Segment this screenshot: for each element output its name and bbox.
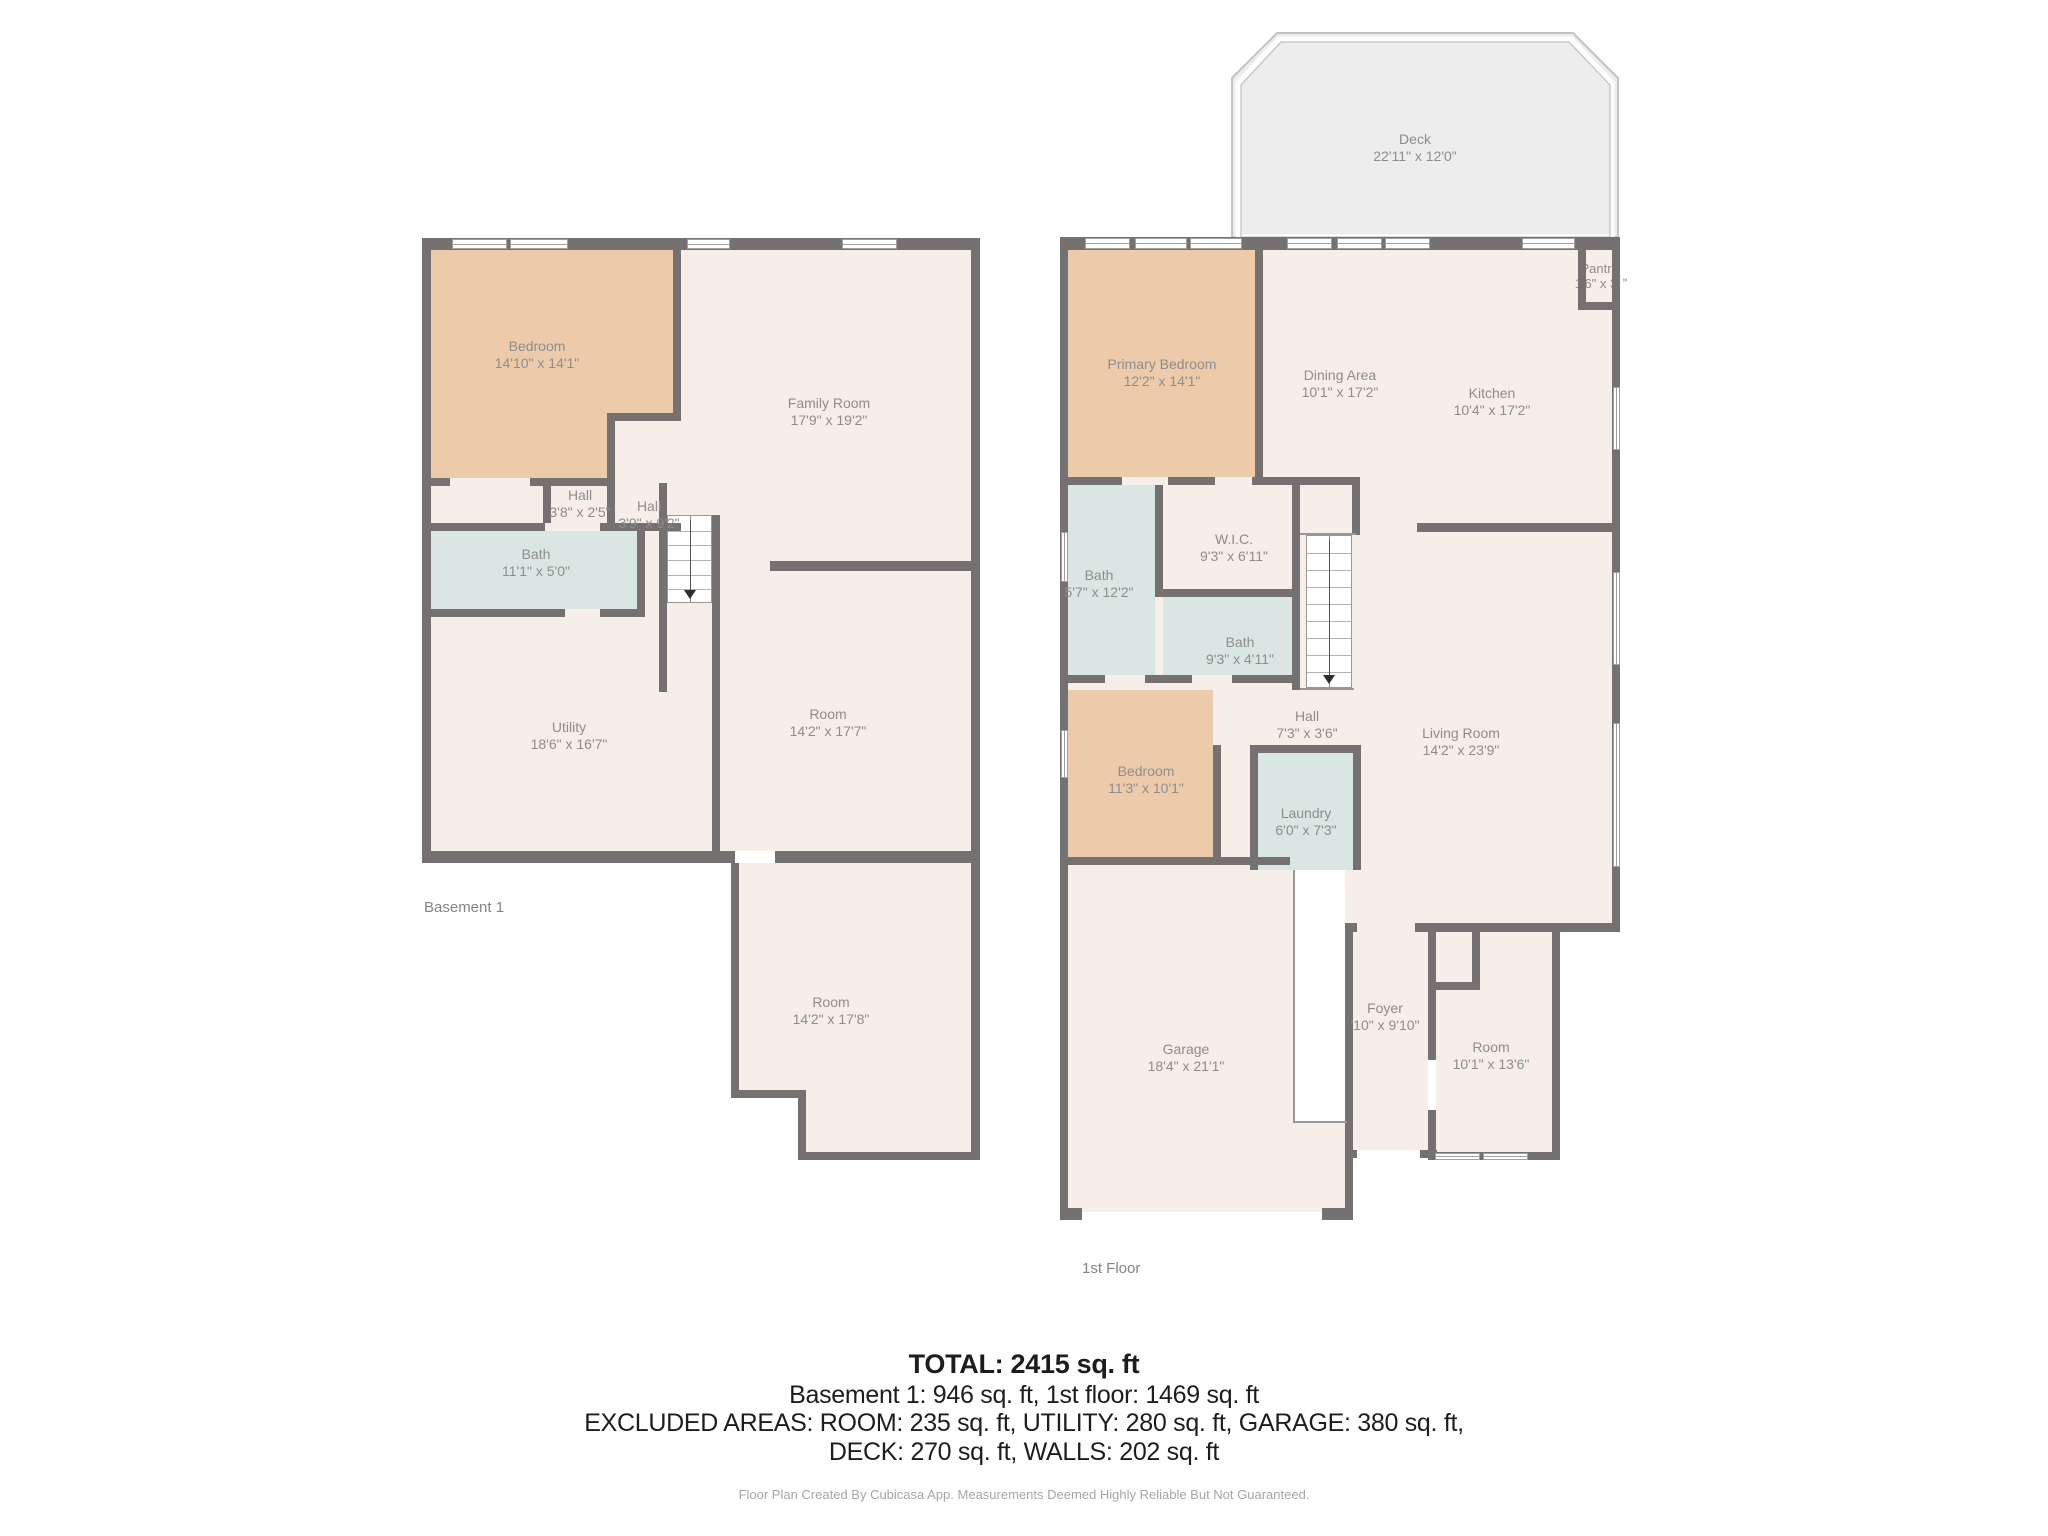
- wall: [1292, 485, 1300, 690]
- stair-direction-arrow: [690, 520, 691, 594]
- window-icon: [1613, 387, 1620, 450]
- room-name: Hall: [1295, 708, 1319, 724]
- wall: [530, 478, 607, 486]
- room-dims: 10'1" x 13'6": [1453, 1056, 1530, 1073]
- wall: [1213, 745, 1221, 865]
- room-dims: 10'4" x 17'2": [1454, 402, 1531, 419]
- room-label-family-room: Family Room 17'9" x 19'2": [788, 395, 870, 429]
- railing-line: [1300, 533, 1356, 535]
- room-label-garage: Garage 18'4" x 21'1": [1148, 1041, 1225, 1075]
- room-name: Bedroom: [1118, 763, 1175, 779]
- window-mullion: [843, 244, 896, 245]
- room-name: Bedroom: [509, 338, 566, 354]
- stair-arrow-head-icon: [684, 590, 696, 599]
- window-icon: [1385, 238, 1430, 249]
- window-icon: [1287, 238, 1332, 249]
- basement-caption: Basement 1: [424, 899, 504, 916]
- wall: [1578, 302, 1620, 310]
- room-name: Room: [809, 706, 846, 722]
- wall: [1345, 923, 1357, 932]
- wall: [422, 609, 565, 617]
- room-dims: 11'1" x 5'0": [502, 563, 570, 580]
- room-dims: 9'3" x 6'11": [1200, 548, 1268, 565]
- window-icon: [1337, 238, 1382, 249]
- wall: [1345, 1150, 1357, 1158]
- window-icon: [1522, 238, 1575, 249]
- staircase: [1306, 535, 1352, 688]
- wall: [1352, 485, 1360, 535]
- room-label-basement-room-1: Room 14'2" x 17'7": [790, 706, 867, 740]
- wall: [798, 1098, 806, 1160]
- window-mullion: [688, 244, 729, 245]
- room-name: Room: [1472, 1039, 1509, 1055]
- room-name: Living Room: [1422, 725, 1500, 741]
- window-mullion: [511, 244, 567, 245]
- wall: [1168, 477, 1215, 485]
- wall: [731, 863, 739, 1098]
- room-name: W.I.C.: [1215, 531, 1253, 547]
- window-mullion: [1523, 243, 1574, 244]
- summary-total: TOTAL: 2415 sq. ft: [0, 1349, 2048, 1380]
- wall: [1255, 250, 1263, 477]
- room-dims: 12'2" x 14'1": [1108, 373, 1217, 390]
- room-dims: '10" x 9'10": [1351, 1017, 1420, 1034]
- room-name: Bath: [1226, 634, 1255, 650]
- wall: [1250, 745, 1258, 870]
- window-icon: [1190, 238, 1242, 249]
- room-dims: 14'10" x 14'1": [495, 355, 580, 372]
- room-name: Utility: [552, 719, 586, 735]
- wall: [1060, 237, 1068, 1220]
- room-label-basement-bedroom: Bedroom 14'10" x 14'1": [495, 338, 580, 372]
- room-dims: 14'2" x 17'7": [790, 723, 867, 740]
- room-label-utility: Utility 18'6" x 16'7": [531, 719, 608, 753]
- window-mullion: [453, 244, 506, 245]
- window-icon: [842, 239, 897, 249]
- wall: [1060, 1208, 1082, 1220]
- room-dims: 14'2" x 23'9": [1422, 742, 1500, 759]
- window-mullion: [1616, 573, 1617, 664]
- room-name: Hall: [568, 487, 592, 503]
- wall: [1415, 923, 1620, 932]
- wall: [673, 238, 681, 413]
- room-dims: 11'3" x 10'1": [1108, 780, 1184, 797]
- room-dims: 17'9" x 19'2": [788, 412, 870, 429]
- room-dims: 14'2" x 17'8": [793, 1011, 870, 1028]
- room-name: Garage: [1163, 1041, 1210, 1057]
- wall: [775, 851, 980, 863]
- room-dims: 18'6" x 16'7": [531, 736, 608, 753]
- window-icon: [510, 239, 568, 249]
- room-label-bath-1: Bath 5'7" x 12'2": [1065, 567, 1134, 601]
- room-label-dining-area: Dining Area 10'1" x 17'2": [1302, 367, 1379, 401]
- bedroom-area: [431, 250, 673, 413]
- room-label-hall: Hall 7'3" x 3'6": [1276, 708, 1337, 742]
- summary-disclaimer: Floor Plan Created By Cubicasa App. Meas…: [0, 1487, 2048, 1502]
- pantry-overflow-mark: ": [1623, 276, 1628, 291]
- wall: [1472, 932, 1480, 990]
- room-name: Kitchen: [1469, 385, 1516, 401]
- room-label-basement-hall-2: Hall 3'9" x 9'2": [618, 498, 679, 532]
- room-dims: 10'1" x 17'2": [1302, 384, 1379, 401]
- room-label-living-room: Living Room 14'2" x 23'9": [1422, 725, 1500, 759]
- wall: [1345, 930, 1353, 1158]
- room-dims: 7'3" x 3'6": [1276, 725, 1337, 742]
- stair-arrow-head-icon: [1323, 675, 1335, 684]
- summary-excluded-areas-2: DECK: 270 sq. ft, WALLS: 202 sq. ft: [0, 1438, 2048, 1467]
- first-floor-caption: 1st Floor: [1082, 1260, 1140, 1277]
- wall: [1060, 477, 1122, 485]
- floor-area: [806, 1090, 971, 1152]
- window-icon: [1483, 1153, 1528, 1160]
- window-icon: [1435, 1153, 1480, 1160]
- window-mullion: [1136, 243, 1186, 244]
- room-label-primary-bedroom: Primary Bedroom 12'2" x 14'1": [1108, 356, 1217, 390]
- window-mullion: [1064, 731, 1065, 777]
- wall: [1353, 745, 1361, 870]
- wall: [1578, 250, 1586, 310]
- window-icon: [687, 239, 730, 249]
- stairwell-opening: [1295, 870, 1345, 1121]
- railing-line: [1293, 870, 1295, 1123]
- wall: [1250, 745, 1353, 753]
- room-label-bedroom-2: Bedroom 11'3" x 10'1": [1108, 763, 1184, 797]
- summary-floor-areas: Basement 1: 946 sq. ft, 1st floor: 1469 …: [0, 1381, 2048, 1410]
- room-label-wic: W.I.C. 9'3" x 6'11": [1200, 531, 1268, 565]
- wall: [637, 531, 645, 617]
- wall: [607, 413, 681, 421]
- wall: [422, 478, 450, 486]
- room-dims: 3'8" x 2'5": [549, 504, 610, 521]
- wall: [731, 1090, 806, 1098]
- wall: [422, 523, 545, 531]
- window-icon: [1613, 723, 1620, 867]
- window-icon: [1085, 238, 1130, 249]
- window-icon: [1135, 238, 1187, 249]
- room-label-foyer: Foyer '10" x 9'10": [1351, 1000, 1420, 1034]
- wall: [1155, 589, 1300, 597]
- wall: [798, 1152, 980, 1160]
- wall: [712, 515, 720, 863]
- window-mullion: [1386, 243, 1429, 244]
- room-label-deck: Deck 22'11" x 12'0": [1373, 131, 1457, 165]
- window-mullion: [1616, 724, 1617, 866]
- room-name: Foyer: [1367, 1000, 1403, 1016]
- room-label-basement-bath: Bath 11'1" x 5'0": [502, 546, 570, 580]
- wall: [1060, 675, 1105, 683]
- room-name: Hall: [637, 498, 661, 514]
- wall: [1232, 675, 1300, 683]
- room-dims: 3'9" x 9'2": [618, 515, 679, 532]
- wall: [1145, 675, 1192, 683]
- window-icon: [1613, 572, 1620, 665]
- room-name: Primary Bedroom: [1108, 356, 1217, 372]
- room-dims: 18'4" x 21'1": [1148, 1058, 1225, 1075]
- window-mullion: [1484, 1156, 1527, 1157]
- room-name: Room: [812, 994, 849, 1010]
- room-name: Bath: [522, 546, 551, 562]
- wall: [1552, 932, 1560, 1160]
- room-dims: 22'11" x 12'0": [1373, 148, 1457, 165]
- room-dims: 6'0" x 7'3": [1275, 822, 1336, 839]
- window-mullion: [1288, 243, 1331, 244]
- stair-direction-arrow: [1329, 540, 1330, 679]
- room-name: Deck: [1399, 131, 1431, 147]
- room-label-basement-room-2: Room 14'2" x 17'8": [793, 994, 870, 1028]
- railing-line: [1293, 1121, 1347, 1123]
- wall: [770, 561, 980, 571]
- window-mullion: [1616, 388, 1617, 449]
- window-mullion: [1338, 243, 1381, 244]
- summary-excluded-areas: EXCLUDED AREAS: ROOM: 235 sq. ft, UTILIT…: [0, 1409, 2048, 1438]
- window-mullion: [1086, 243, 1129, 244]
- room-label-room-3: Room 10'1" x 13'6": [1453, 1039, 1530, 1073]
- railing-line: [1300, 688, 1354, 690]
- wall: [1428, 1110, 1436, 1158]
- room-name: Dining Area: [1304, 367, 1376, 383]
- wall: [422, 238, 431, 863]
- floor-plan-page: Bedroom 14'10" x 14'1" Family Room 17'9"…: [0, 0, 2048, 1536]
- window-icon: [452, 239, 507, 249]
- room-dims: 9'3" x 4'11": [1206, 651, 1274, 668]
- wall: [1155, 485, 1163, 597]
- wall: [1252, 477, 1360, 485]
- room-label-bath-2: Bath 9'3" x 4'11": [1206, 634, 1274, 668]
- wall: [971, 863, 980, 1160]
- wall: [1417, 523, 1620, 532]
- wall: [1428, 932, 1436, 1060]
- window-icon: [1061, 730, 1068, 778]
- room-name: Laundry: [1281, 805, 1332, 821]
- floor-area: [739, 863, 971, 1090]
- wall: [600, 609, 645, 617]
- room-label-laundry: Laundry 6'0" x 7'3": [1275, 805, 1336, 839]
- wall: [422, 851, 735, 863]
- bedroom-area: [431, 413, 607, 478]
- window-mullion: [1436, 1156, 1479, 1157]
- room-name: Family Room: [788, 395, 870, 411]
- room-dims: 5'7" x 12'2": [1065, 584, 1134, 601]
- window-mullion: [1191, 243, 1241, 244]
- room-name: Bath: [1085, 567, 1114, 583]
- floor-area: [1353, 932, 1428, 1150]
- room-label-kitchen: Kitchen 10'4" x 17'2": [1454, 385, 1531, 419]
- room-label-basement-hall-1: Hall 3'8" x 2'5": [549, 487, 610, 521]
- wall: [971, 238, 980, 863]
